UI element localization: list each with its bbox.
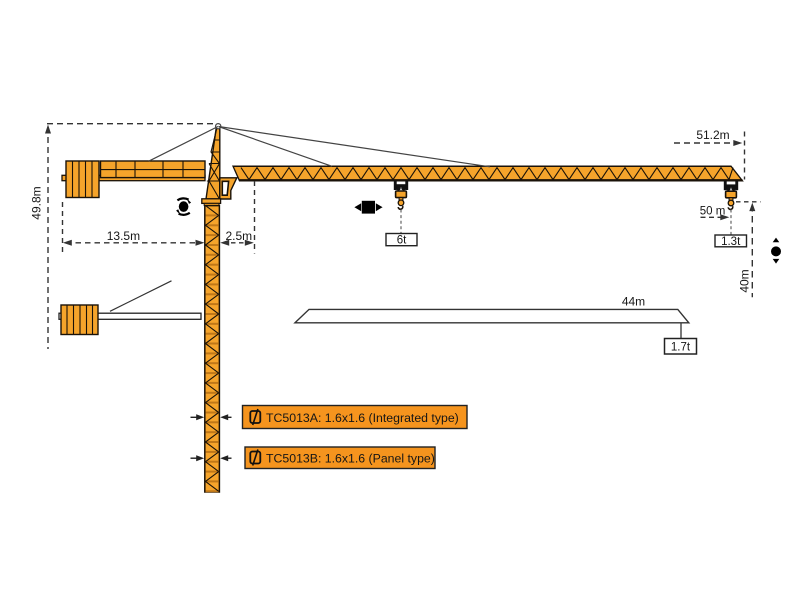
svg-text:44m: 44m xyxy=(622,295,645,309)
svg-text:1.3t: 1.3t xyxy=(721,236,741,248)
svg-text:2.5m: 2.5m xyxy=(225,229,252,243)
svg-text:51.2m: 51.2m xyxy=(696,128,729,142)
svg-text:TC5013A: 1.6x1.6 (Integrated: TC5013A: 1.6x1.6 (Integrated type) xyxy=(266,411,459,425)
svg-text:1.7t: 1.7t xyxy=(671,342,691,354)
svg-text:13.5m: 13.5m xyxy=(107,229,140,243)
svg-text:40m: 40m xyxy=(737,269,751,292)
svg-text:6t: 6t xyxy=(397,235,407,247)
svg-text:TC5013B: 1.6x1.6 (Panel type: TC5013B: 1.6x1.6 (Panel type) xyxy=(266,452,435,466)
svg-text:49.8m: 49.8m xyxy=(30,186,44,219)
